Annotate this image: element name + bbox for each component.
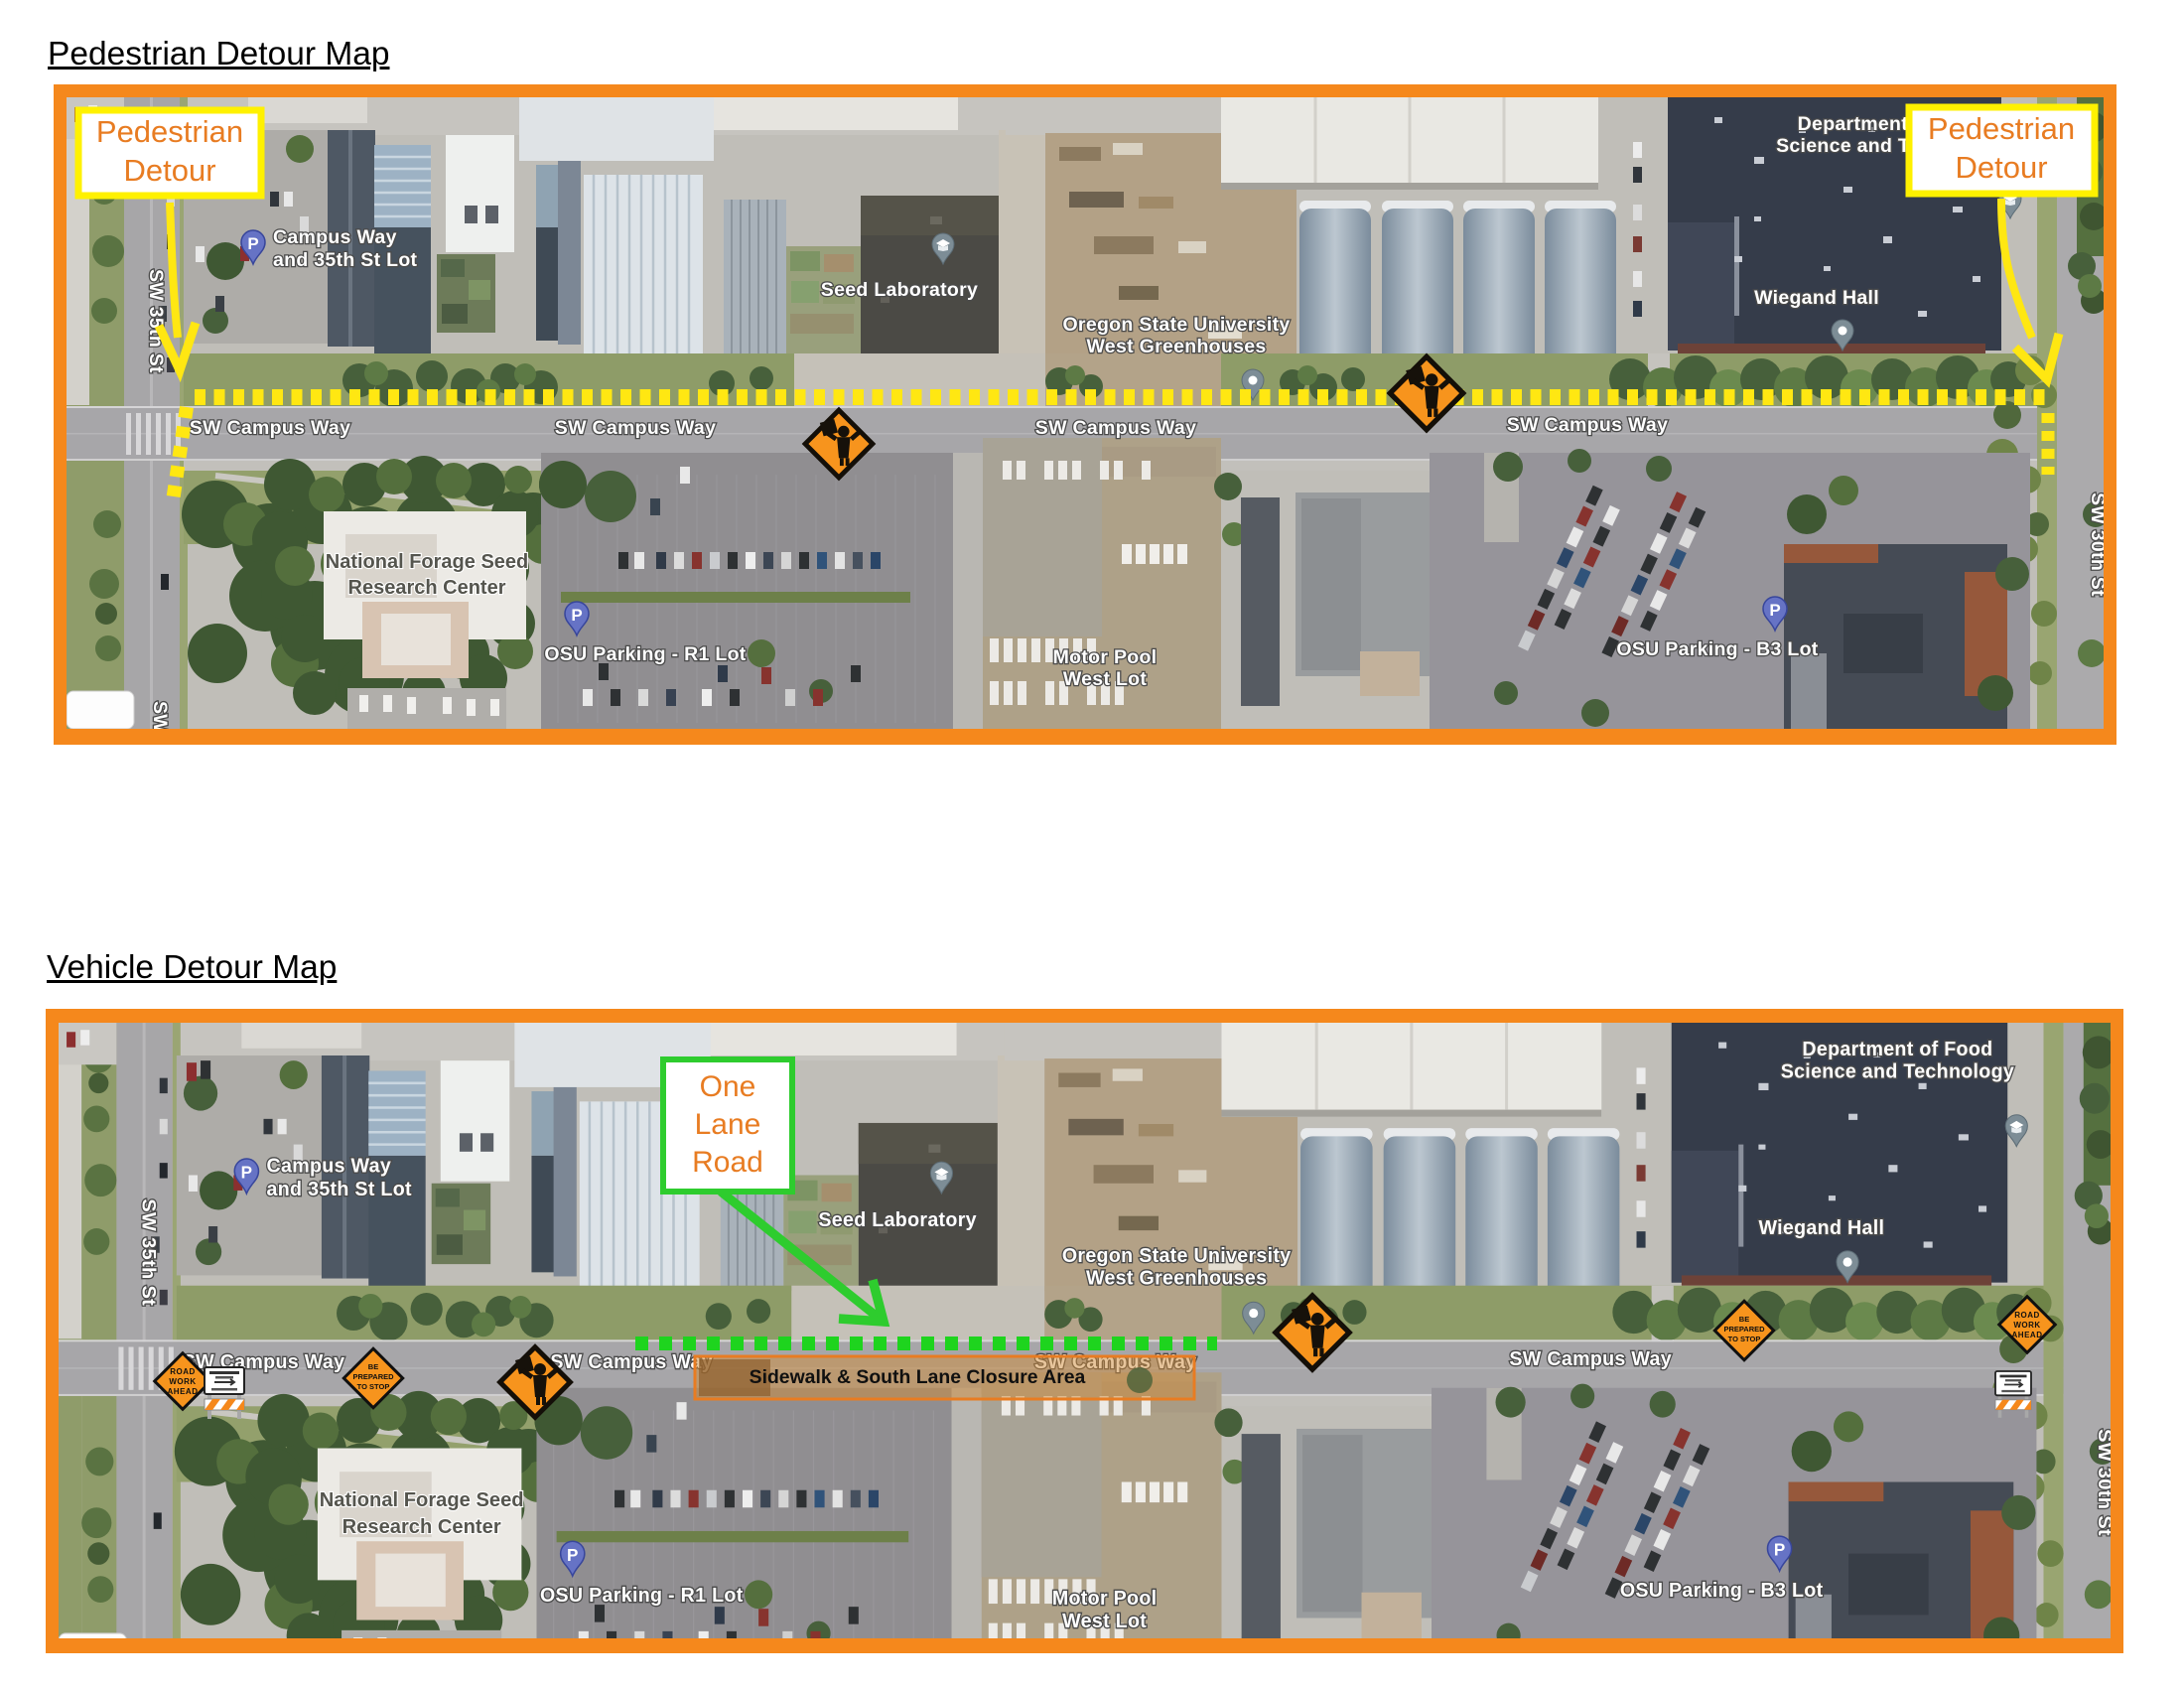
svg-text:Detour: Detour (1955, 150, 2047, 185)
svg-text:Pedestrian: Pedestrian (1928, 111, 2075, 146)
svg-text:Road: Road (692, 1146, 763, 1179)
svg-text:One: One (700, 1070, 756, 1103)
svg-text:Lane: Lane (695, 1108, 761, 1141)
svg-text:Detour: Detour (123, 153, 215, 188)
svg-text:Sidewalk & South Lane Closure: Sidewalk & South Lane Closure Area (750, 1366, 1086, 1388)
svg-text:Pedestrian: Pedestrian (96, 114, 243, 149)
